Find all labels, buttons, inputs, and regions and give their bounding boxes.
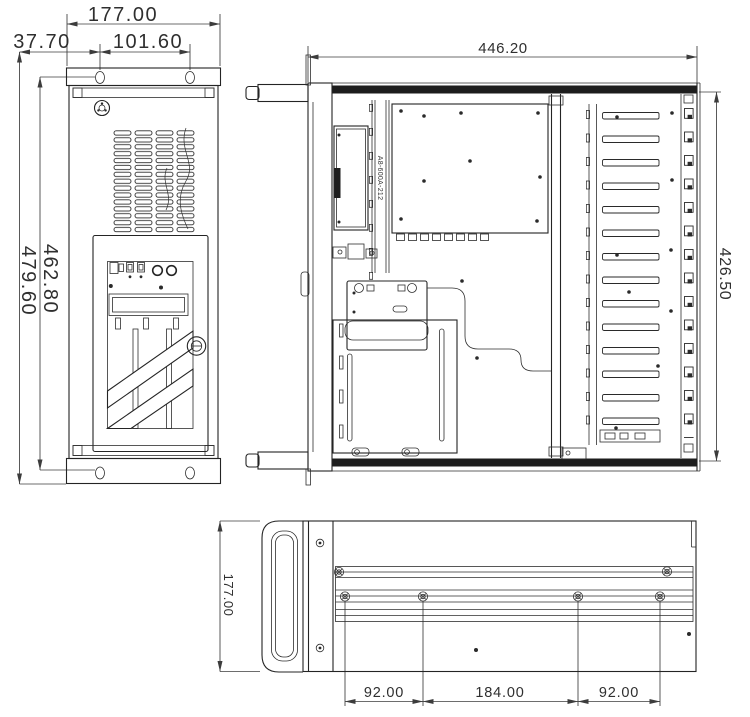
dim-front-hole-offset: 37.70 <box>13 31 71 53</box>
mounting-hole <box>96 467 105 479</box>
led-indicator <box>140 275 143 278</box>
front-chassis <box>67 68 221 484</box>
front-handle <box>262 521 303 672</box>
vent-grid <box>113 128 197 233</box>
slide-rail <box>334 567 693 622</box>
dim-side-center-span: 184.00 <box>475 685 524 701</box>
thumbscrew-icon <box>95 101 110 116</box>
chassis-top-edge <box>332 86 697 94</box>
rail-screw <box>662 567 671 576</box>
led-indicator <box>159 286 163 290</box>
bracket-part-number: A8-600A-212 <box>376 156 383 201</box>
front-face <box>308 83 332 471</box>
reset-button <box>167 266 177 276</box>
center-divider <box>549 94 586 459</box>
slim-drive-bay <box>334 126 368 230</box>
chassis-technical-drawing: 177.00 37.70 101.60 479.60 462.80 <box>0 0 750 717</box>
dim-side-left-span: 92.00 <box>364 685 404 701</box>
diagonal-brace <box>108 331 194 408</box>
dim-front-inner-height: 462.80 <box>39 244 61 314</box>
dim-side-height: 177.00 <box>221 574 236 617</box>
mounting-hole <box>186 467 195 479</box>
rack-handle <box>246 452 311 485</box>
expansion-slots <box>600 112 660 442</box>
dim-top-width: 446.20 <box>478 40 527 57</box>
drawing-canvas: 177.00 37.70 101.60 479.60 462.80 <box>0 0 750 717</box>
card-guide-rail <box>586 104 597 445</box>
connector-port <box>110 263 118 274</box>
drive-bay-slot <box>109 294 188 316</box>
front-view-dimensions: 177.00 37.70 101.60 479.60 462.80 <box>13 4 220 484</box>
motherboard-tray <box>392 104 548 242</box>
bottom-mounting-flange <box>67 459 221 484</box>
front-door <box>93 236 208 452</box>
dim-top-depth: 426.50 <box>716 248 733 301</box>
side-view: 177.00 92.00 184.00 92.00 <box>220 521 696 706</box>
cable-route <box>427 288 551 371</box>
mounting-hole <box>186 72 195 84</box>
dim-front-overall-height: 479.60 <box>17 246 39 316</box>
front-strip <box>309 521 334 672</box>
usb-port <box>127 263 134 273</box>
control-panel <box>109 263 177 290</box>
front-view: 177.00 37.70 101.60 479.60 462.80 <box>13 4 220 484</box>
rail-screw <box>655 592 664 601</box>
screw <box>316 644 324 652</box>
rack-handle <box>246 55 311 102</box>
led-indicator <box>129 275 132 278</box>
dim-side-right-span: 92.00 <box>599 685 639 701</box>
center-bracket: A8-600A-212 <box>369 100 389 280</box>
usb-port <box>138 263 145 273</box>
drive-connector <box>335 168 341 198</box>
connector-row <box>396 234 492 242</box>
screw <box>316 539 324 547</box>
side-view-dimensions: 177.00 92.00 184.00 92.00 <box>220 521 660 706</box>
rail-screw <box>573 592 582 601</box>
power-button <box>153 266 163 276</box>
side-chassis <box>262 521 696 672</box>
mounting-hole <box>96 72 105 84</box>
dim-front-hole-spacing: 101.60 <box>113 31 183 53</box>
bay-divider <box>167 329 172 429</box>
rail-screw <box>418 592 427 601</box>
dim-front-width: 177.00 <box>88 4 158 26</box>
led-indicator <box>109 284 113 288</box>
rail-screw <box>340 592 349 601</box>
chassis-bottom-edge <box>332 459 697 467</box>
top-view: 446.20 426.50 <box>246 40 733 485</box>
top-interior: A8-600A-212 <box>333 94 694 459</box>
psu-mount-plate <box>345 281 428 350</box>
